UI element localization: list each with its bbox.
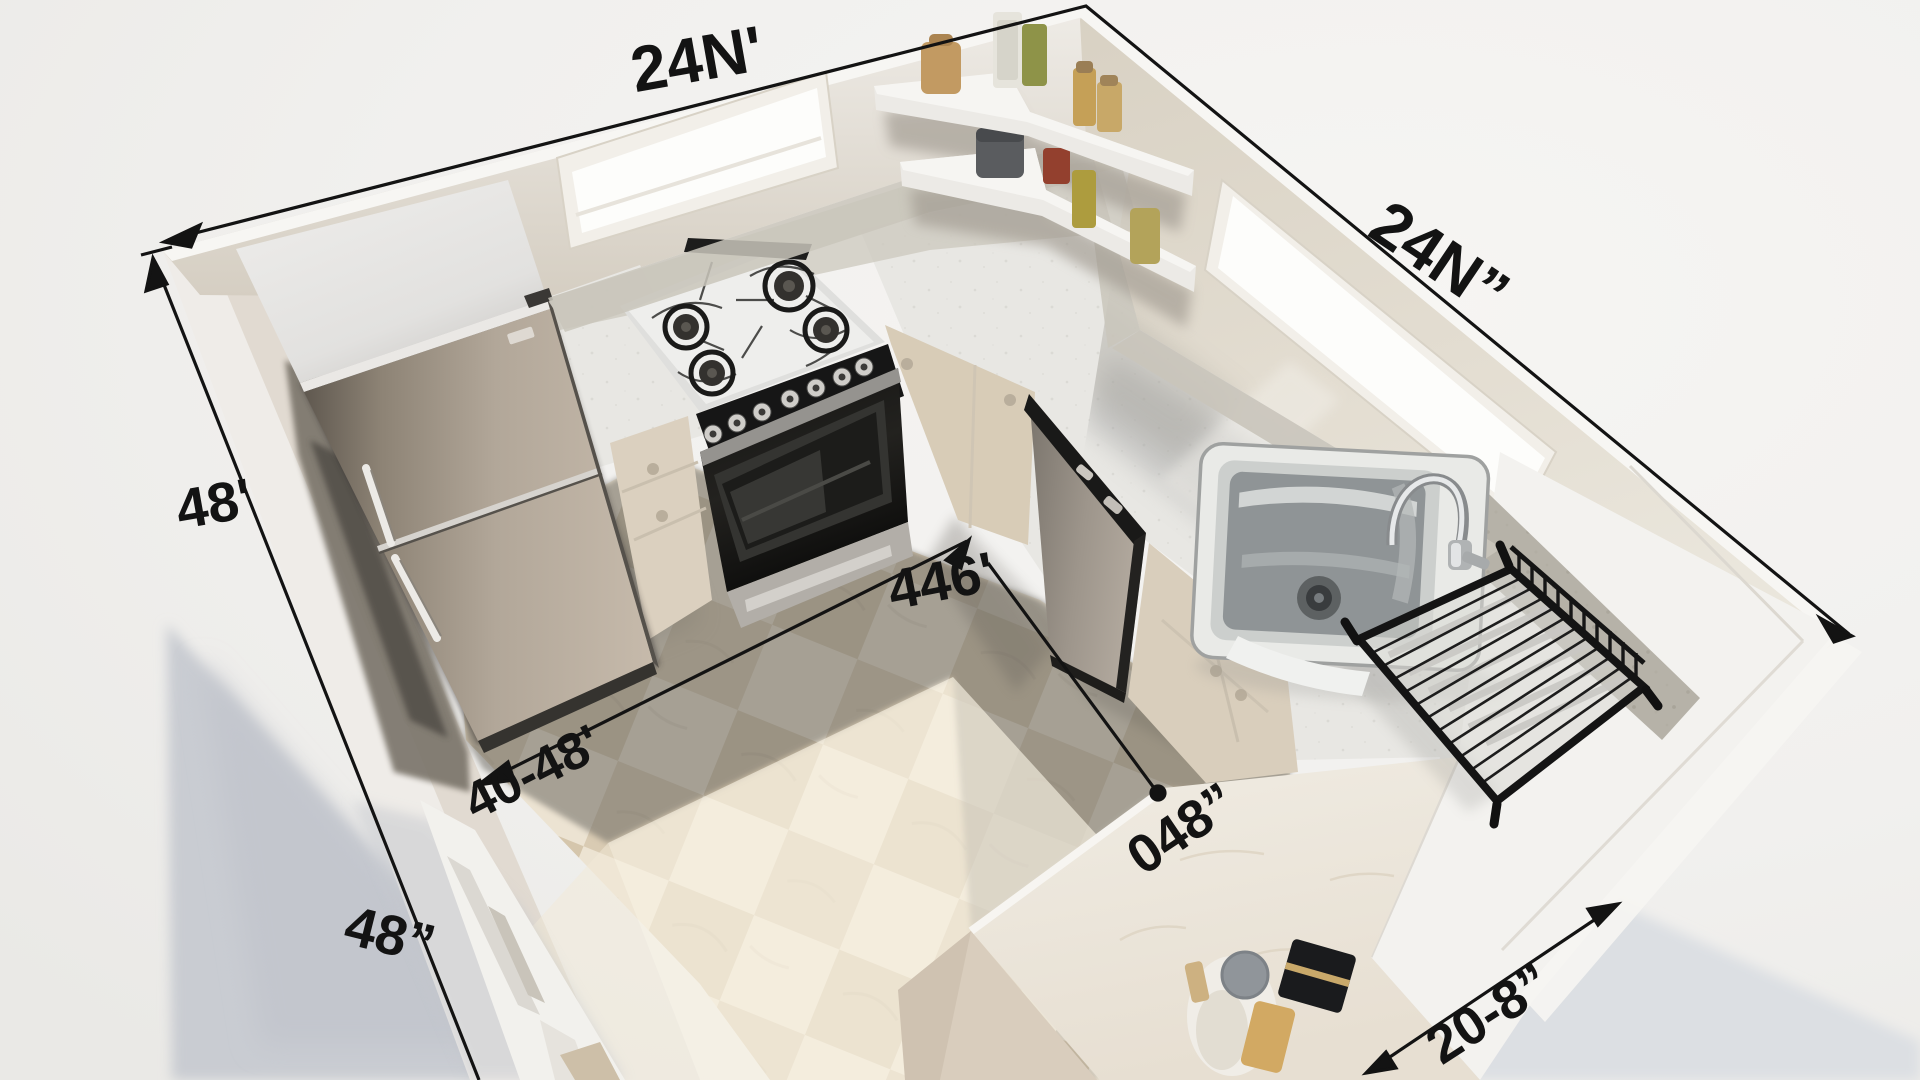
svg-text:48': 48' [171,466,256,541]
